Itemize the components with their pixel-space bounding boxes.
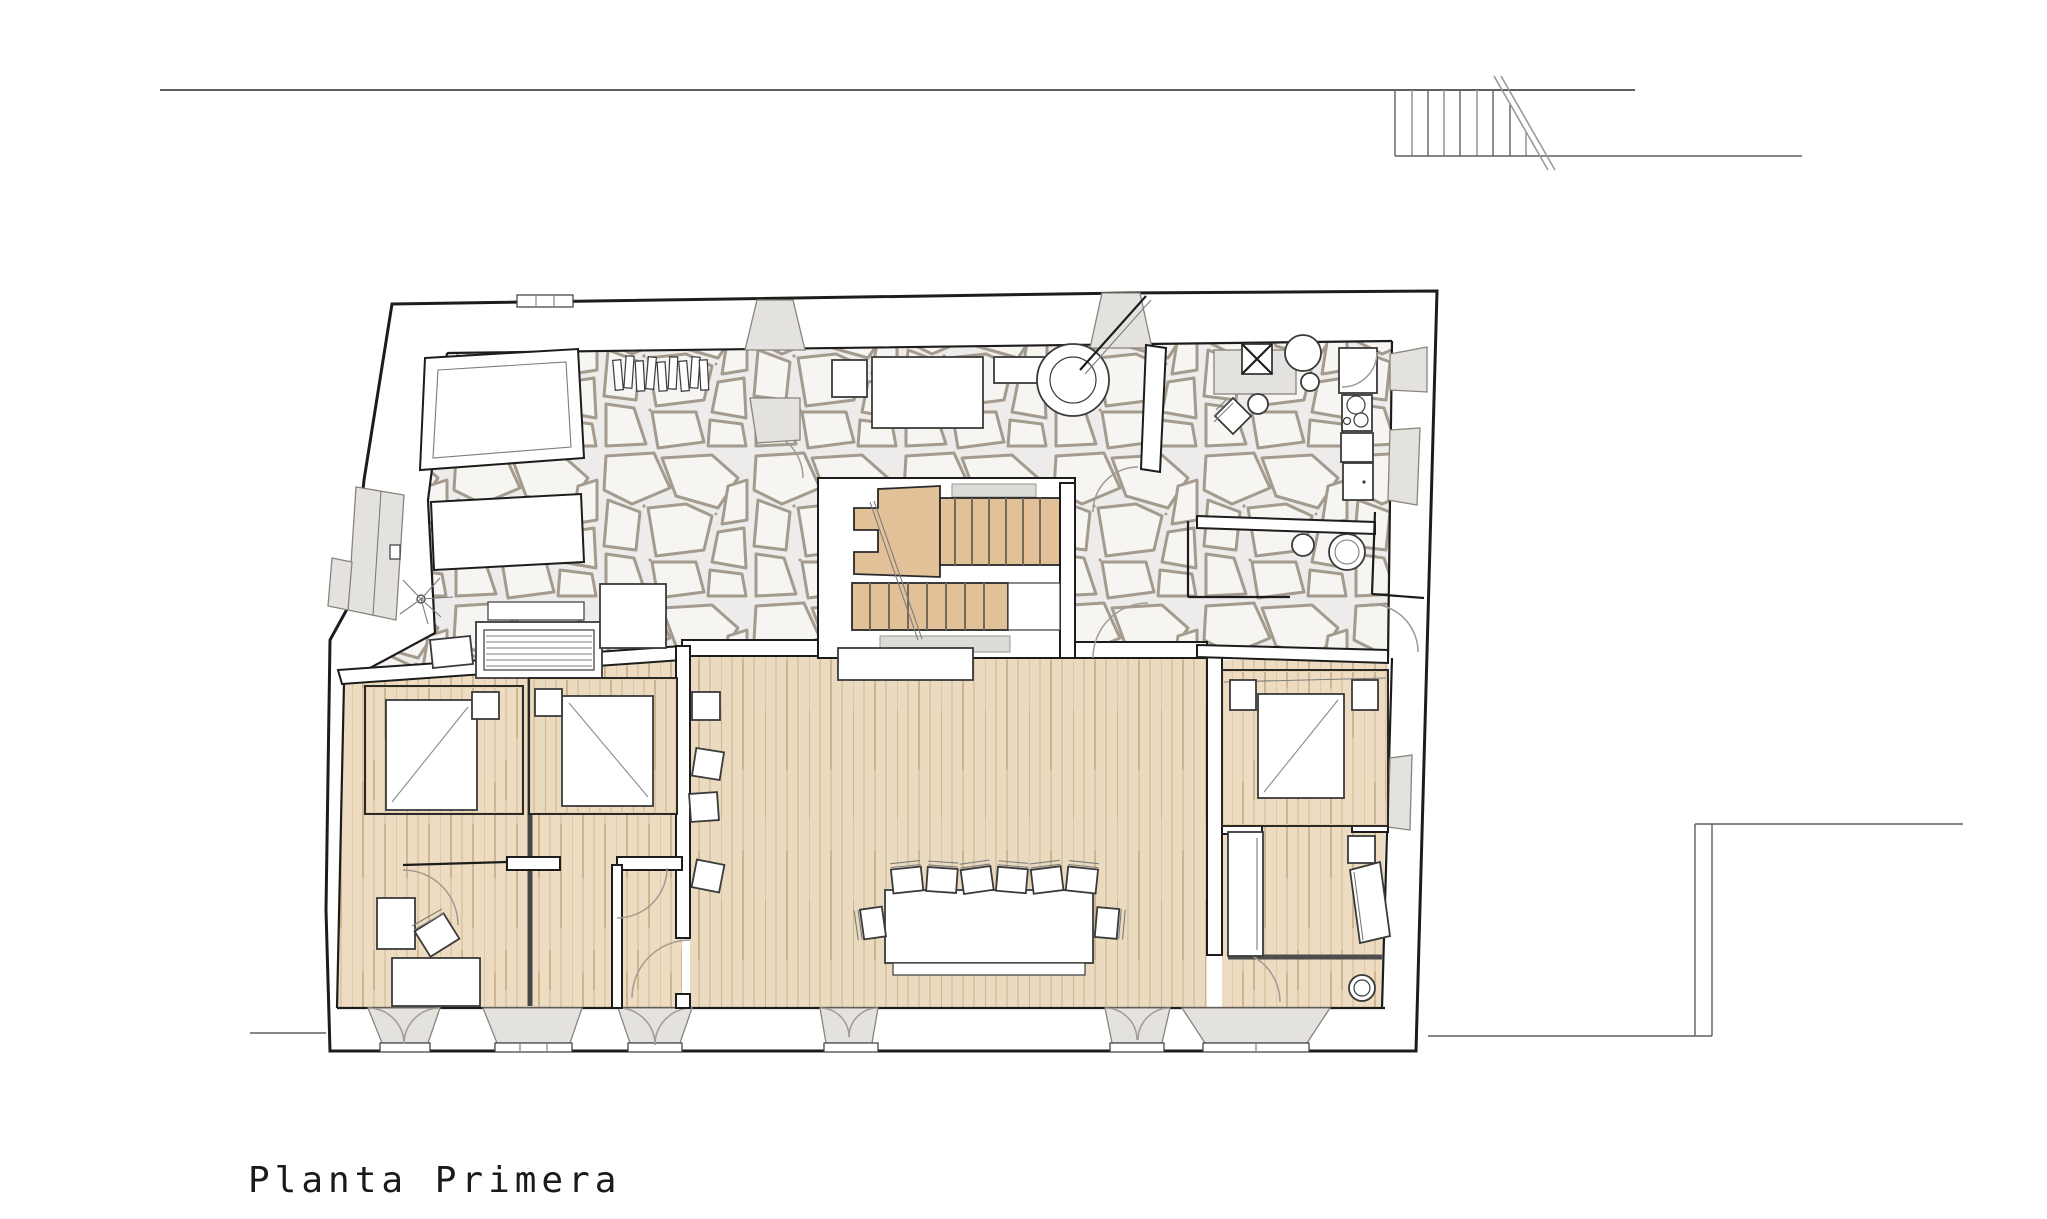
bed-2-pillow <box>535 689 562 716</box>
floor-plan-drawing <box>0 0 2047 1219</box>
staircase <box>818 478 1075 658</box>
wall-living-west-stub <box>676 994 690 1008</box>
storage-room-tilted <box>420 349 584 470</box>
stair-lower-landing <box>1008 583 1060 630</box>
site-boundary-right <box>1428 824 1963 1036</box>
desk <box>392 958 480 1006</box>
kitchen-sink-large <box>1285 335 1321 371</box>
bed-3-pillow-left <box>1230 680 1256 710</box>
skylight-shaft <box>1242 344 1272 374</box>
sofa <box>1228 832 1263 956</box>
kitchen-sink-small <box>1301 373 1319 391</box>
dining-table <box>885 890 1093 975</box>
floor-plan-sheet: Planta Primera <box>0 0 2047 1219</box>
bed-2-mattress <box>562 696 653 806</box>
wardrobe <box>377 898 415 949</box>
louvered-console <box>476 602 602 678</box>
stair-lintel-top <box>952 484 1036 497</box>
window-bottom-1 <box>483 1008 582 1052</box>
hall-square-table <box>600 584 666 648</box>
bed-1-mattress <box>386 700 477 810</box>
kitchen-counter <box>1341 433 1373 462</box>
stair-east-wall <box>1060 483 1075 658</box>
side-table-2 <box>1348 836 1375 863</box>
window-splay-right-1 <box>1390 347 1427 392</box>
bedroom-2 <box>529 678 677 814</box>
left-door-splay <box>328 558 352 610</box>
stair-upper-flight <box>940 498 1060 565</box>
door-bottom-2 <box>618 1008 692 1052</box>
storage-room-2 <box>431 494 584 570</box>
door-bottom-3 <box>820 1008 878 1052</box>
toilet <box>1292 534 1314 556</box>
washbasin <box>1329 534 1365 570</box>
wall-right-suite-west <box>1207 652 1222 955</box>
left-wall-recess <box>348 487 404 620</box>
kitchen-stool <box>1248 394 1268 414</box>
window-bottom-2 <box>1182 1008 1330 1052</box>
kitchen-appliance <box>1343 463 1373 500</box>
stove <box>1342 395 1372 431</box>
wall-living-top-left <box>682 640 818 656</box>
bed-1-pillow <box>472 692 499 719</box>
wall-stub-2 <box>617 857 682 870</box>
hall-trapezoid-table <box>430 636 473 668</box>
bed-3-pillow-right <box>1352 680 1378 710</box>
hall-table <box>872 357 983 428</box>
bedroom-3 <box>1222 670 1388 826</box>
door-bottom-4 <box>1105 1008 1170 1052</box>
window-top-1 <box>517 295 573 307</box>
window-splay-right-2 <box>1388 428 1420 505</box>
floor-lamp <box>1349 975 1375 1001</box>
wall-living-west <box>676 646 690 938</box>
hall-side-table <box>832 360 867 397</box>
page-title: Planta Primera <box>248 1160 621 1201</box>
wall-stub-1 <box>507 857 560 870</box>
sideboard <box>838 648 973 680</box>
storage-door-splay <box>750 398 800 443</box>
window-splay-right-3 <box>1388 755 1412 830</box>
wall-vestibule <box>612 865 622 1008</box>
